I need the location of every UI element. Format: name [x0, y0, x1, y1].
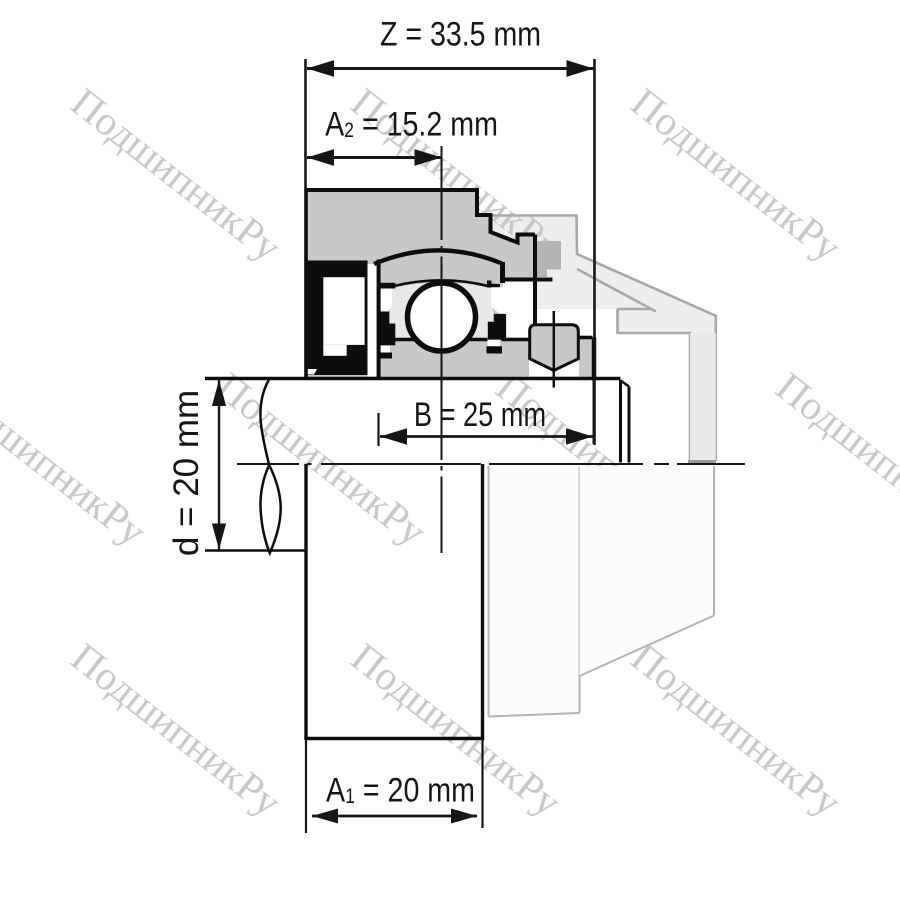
svg-text:Z = 33.5 mm: Z = 33.5 mm [380, 15, 541, 53]
svg-text:d = 20 mm: d = 20 mm [167, 390, 206, 556]
svg-text:B = 25 mm: B = 25 mm [414, 395, 546, 434]
